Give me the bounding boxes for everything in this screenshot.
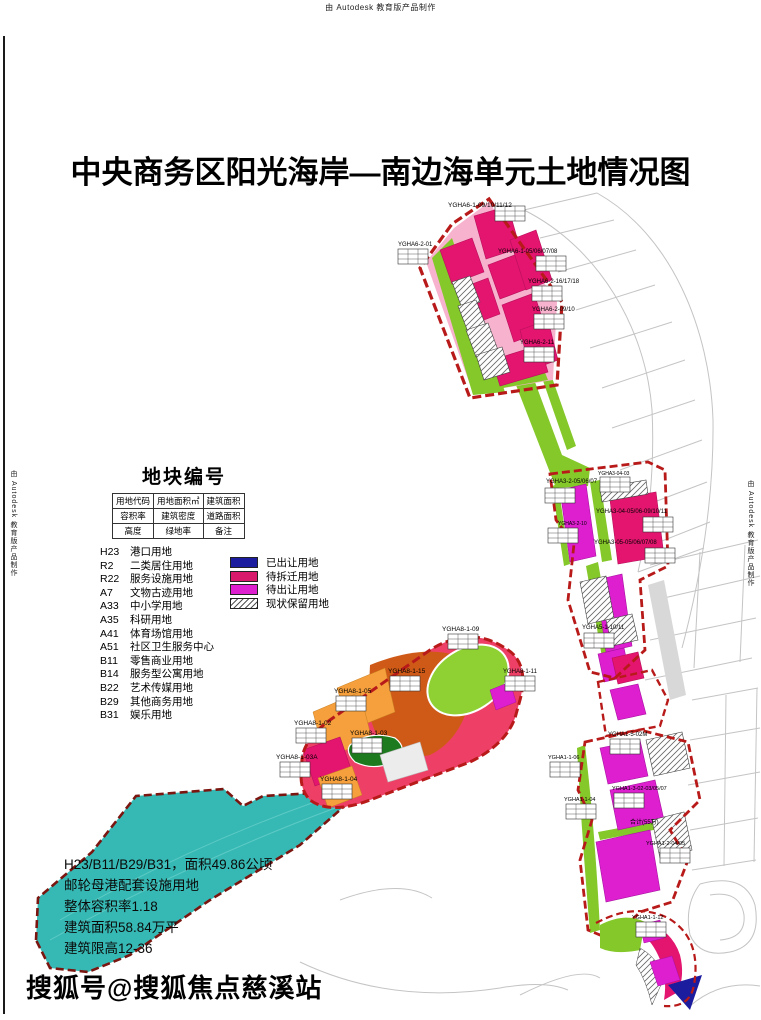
landuse-label: 文物古迹用地 <box>130 587 193 599</box>
status-item: 现状保留用地 <box>230 597 329 611</box>
plot-label: YGHA8-1-15 <box>388 668 426 675</box>
landuse-label: 科研用地 <box>130 614 172 626</box>
landuse-item: B14服务型公寓用地 <box>100 668 214 682</box>
cluster-south: YGHA1-5-02M YGHA1-1-06 YGHA1-1-04 YGHA1-… <box>548 670 700 940</box>
landuse-label: 艺术传媒用地 <box>130 682 193 694</box>
plot-label: YGHA1-1-04 <box>564 797 596 803</box>
status-item: 已出让用地 <box>230 556 329 570</box>
landuse-label: 零售商业用地 <box>130 655 193 667</box>
key-cell: 道路面积 <box>203 509 244 524</box>
landuse-code: A51 <box>100 641 130 655</box>
landuse-code: B22 <box>100 682 130 696</box>
status-item: 待出让用地 <box>230 583 329 597</box>
annotation-line: 建筑面积58.84万平 <box>64 917 272 938</box>
landuse-item: A7文物古迹用地 <box>100 587 214 601</box>
plot-label: YGHA8-1-09 <box>442 626 480 633</box>
plot-label: YGHA3-04-03 <box>598 471 630 477</box>
landuse-item: H23港口用地 <box>100 546 214 560</box>
landuse-item: B29其他商务用地 <box>100 696 214 710</box>
plot-label: YGHA8-1-02 <box>294 720 332 727</box>
status-legend: 已出让用地 待拆迁用地 待出让用地 现状保留用地 <box>230 556 329 610</box>
landuse-item: B11零售商业用地 <box>100 655 214 669</box>
page-title: 中央商务区阳光海岸—南边海单元土地情况图 <box>0 147 761 192</box>
landuse-label: 中小学用地 <box>130 600 183 612</box>
landuse-code: B29 <box>100 696 130 710</box>
retained-land-swatch <box>230 598 258 609</box>
plot-label: YGHA8-1-03 <box>350 730 388 737</box>
key-cell: 用地代码 <box>113 494 154 509</box>
land-use-map-page: YGHA6-1-09/10/11/12 YGHA6-2-01 YGHA6-1-0… <box>0 0 761 1020</box>
landuse-code: A33 <box>100 600 130 614</box>
plot-label: YGHA6-2-16/17/18 <box>528 279 580 285</box>
cluster-north: YGHA6-1-09/10/11/12 YGHA6-2-01 YGHA6-1-0… <box>398 199 580 398</box>
gray-corridor <box>648 580 686 700</box>
plot-label: YGHA3-2-05/06/07 <box>546 479 598 485</box>
plot-label: YGHA8-1-04 <box>320 776 358 783</box>
status-item: 待拆迁用地 <box>230 570 329 584</box>
cluster-peninsula: YGHA8-1-09 YGHA8-1-15 YGHA8-1-05 YGHA8-1… <box>276 626 538 808</box>
plot-label: YGHA6-1-09/10/11/12 <box>448 202 512 209</box>
landuse-code: R22 <box>100 573 130 587</box>
annotation-line: H23/B11/B29/B31，面积49.86公顷 <box>64 854 272 875</box>
plot-label: YGHA6-2-09/10 <box>532 307 575 313</box>
plot-label: YGHA6-2-11 <box>520 340 555 346</box>
plot-label: YGHA3-2-10 <box>558 521 587 527</box>
landuse-label: 服务设施用地 <box>130 573 193 585</box>
plot-label: YGHA1-1-12 <box>632 915 664 921</box>
landuse-label: 港口用地 <box>130 546 172 558</box>
annotation-line: 邮轮母港配套设施用地 <box>64 875 272 896</box>
to-transfer-land-swatch <box>230 584 258 595</box>
autodesk-credit-left: 由 Autodesk 教育版产品制作 <box>8 470 18 577</box>
landuse-code: A7 <box>100 587 130 601</box>
landuse-code: B31 <box>100 709 130 723</box>
to-demolish-land-swatch <box>230 571 258 582</box>
key-cell: 绿地率 <box>154 524 204 539</box>
legend-panel: 地块编号 用地代码 用地面积㎡ 建筑面积 容积率 建筑密度 道路面积 高度 绿地… <box>98 462 348 539</box>
port-area-annotation: H23/B11/B29/B31，面积49.86公顷 邮轮母港配套设施用地 整体容… <box>64 854 272 959</box>
landuse-code: A35 <box>100 614 130 628</box>
landuse-item: B22艺术传媒用地 <box>100 682 214 696</box>
landuse-label: 服务型公寓用地 <box>130 668 204 680</box>
annotation-line: 建筑限高12-36 <box>64 938 272 959</box>
plot-number-key-table: 用地代码 用地面积㎡ 建筑面积 容积率 建筑密度 道路面积 高度 绿地率 备注 <box>112 493 245 539</box>
landuse-label: 娱乐用地 <box>130 709 172 721</box>
key-cell: 备注 <box>203 524 244 539</box>
landuse-label: 体育场馆用地 <box>130 628 193 640</box>
key-cell: 用地面积㎡ <box>154 494 204 509</box>
plot-label: YGHA3-04-05/06-09/10/11 <box>596 509 668 515</box>
plot-label: YGHA1-3-02-03/05/07 <box>612 786 667 792</box>
plot-label: YGHA8-1-11 <box>503 669 538 675</box>
plot-label: YGHA8-1-03A <box>276 754 318 761</box>
key-cell: 建筑密度 <box>154 509 204 524</box>
annotation-line: 整体容积率1.18 <box>64 896 272 917</box>
plot-label: YGHA3-05-05/06/07/08 <box>594 540 657 546</box>
legend-heading: 地块编号 <box>142 462 348 489</box>
landuse-item: R22服务设施用地 <box>100 573 214 587</box>
landuse-code: B14 <box>100 668 130 682</box>
landuse-item: B31娱乐用地 <box>100 709 214 723</box>
landuse-label: 二类居住用地 <box>130 560 193 572</box>
landuse-code: R2 <box>100 560 130 574</box>
key-cell: 建筑面积 <box>203 494 244 509</box>
landuse-item: A41体育场馆用地 <box>100 628 214 642</box>
landuse-code: B11 <box>100 655 130 669</box>
autodesk-credit-top: 由 Autodesk 教育版产品制作 <box>0 2 761 13</box>
plot-label: YGHA1-2-04/05 <box>646 841 685 847</box>
plot-label: YGHA8-1-05 <box>334 688 372 695</box>
landuse-code: A41 <box>100 628 130 642</box>
sold-land-swatch <box>230 557 258 568</box>
cluster-middle: YGHA3-2-05/06/07 YGHA3-04-03 YGHA3-04-05… <box>545 462 675 684</box>
plot-label: YGHA1-1-06 <box>548 755 580 761</box>
plot-label: YGHA1-5-02M <box>608 732 647 738</box>
landuse-item: A33中小学用地 <box>100 600 214 614</box>
landuse-item: R2二类居住用地 <box>100 560 214 574</box>
landuse-label: 其他商务用地 <box>130 696 193 708</box>
autodesk-credit-right: 由 Autodesk 教育版产品制作 <box>745 480 755 587</box>
landuse-code-list: H23港口用地 R2二类居住用地 R22服务设施用地 A7文物古迹用地 A33中… <box>100 546 214 723</box>
status-label: 现状保留用地 <box>266 596 329 611</box>
sohu-watermark: 搜狐号@搜狐焦点慈溪站 <box>26 968 322 1005</box>
landuse-item: A51社区卫生服务中心 <box>100 641 214 655</box>
plot-label: 合计(55万) <box>630 818 659 826</box>
key-cell: 容积率 <box>113 509 154 524</box>
plot-label: YGHA5-1-10/11 <box>582 625 625 631</box>
plot-label: YGHA6-1-05/06/07/08 <box>498 249 558 255</box>
plot-label: YGHA6-2-01 <box>398 242 433 248</box>
south-tip-strip: YGHA1-1-12 <box>596 911 702 1010</box>
landuse-item: A35科研用地 <box>100 614 214 628</box>
landuse-label: 社区卫生服务中心 <box>130 641 214 653</box>
landuse-code: H23 <box>100 546 130 560</box>
key-cell: 高度 <box>113 524 154 539</box>
